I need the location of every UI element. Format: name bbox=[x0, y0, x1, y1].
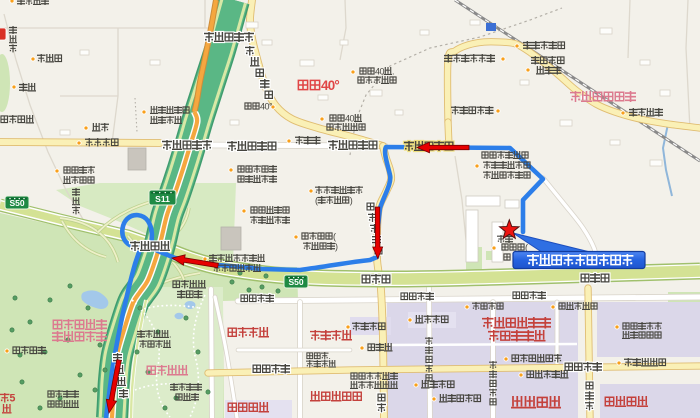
svg-text:5: 5 bbox=[10, 393, 16, 405]
svg-text:0: 0 bbox=[380, 66, 385, 76]
svg-text:.: . bbox=[392, 66, 395, 76]
svg-text:): ) bbox=[335, 241, 338, 251]
svg-text:.: . bbox=[169, 329, 172, 339]
svg-text:S11: S11 bbox=[155, 194, 170, 204]
svg-text:.: . bbox=[329, 351, 331, 361]
svg-text:0: 0 bbox=[350, 113, 355, 123]
svg-text:S50: S50 bbox=[288, 277, 303, 287]
svg-text:): ) bbox=[350, 195, 353, 205]
svg-text:(: ( bbox=[315, 195, 318, 205]
svg-text:(: ( bbox=[333, 231, 336, 241]
svg-text:°: ° bbox=[269, 101, 273, 111]
svg-text:°: ° bbox=[334, 78, 339, 93]
svg-text:S50: S50 bbox=[9, 198, 24, 208]
